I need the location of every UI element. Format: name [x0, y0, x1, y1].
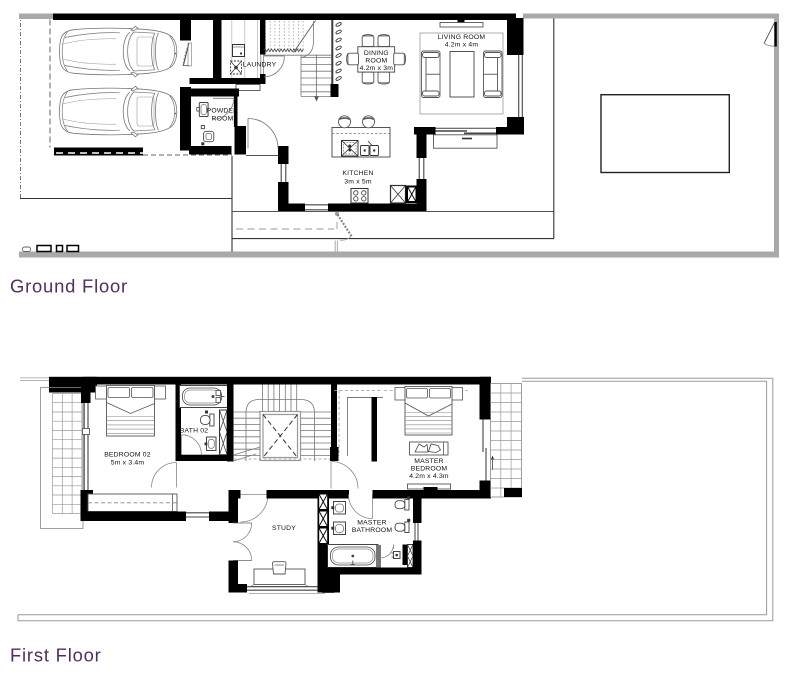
svg-text:LAUNDRY: LAUNDRY [243, 62, 277, 69]
svg-text:First Floor: First Floor [10, 645, 102, 666]
svg-text:DINING: DINING [364, 50, 389, 57]
svg-text:BATH 02: BATH 02 [180, 428, 208, 435]
svg-text:MASTER: MASTER [414, 458, 444, 465]
svg-text:BEDROOM 02: BEDROOM 02 [104, 452, 151, 459]
svg-text:ROOM: ROOM [365, 58, 387, 65]
svg-text:4.2m x 4m: 4.2m x 4m [445, 42, 479, 49]
svg-text:4.2m x 3m: 4.2m x 3m [360, 65, 394, 72]
svg-text:KITCHEN: KITCHEN [342, 170, 373, 177]
svg-text:LIVING ROOM: LIVING ROOM [438, 34, 486, 41]
svg-text:MASTER: MASTER [357, 520, 387, 527]
svg-text:BEDROOM: BEDROOM [411, 466, 448, 473]
svg-text:4.2m x 4.3m: 4.2m x 4.3m [409, 473, 449, 480]
svg-text:3m x 5m: 3m x 5m [344, 179, 372, 186]
svg-text:STUDY: STUDY [272, 525, 296, 532]
svg-text:Ground Floor: Ground Floor [10, 276, 128, 297]
svg-text:POWDER: POWDER [207, 108, 239, 115]
svg-text:BATHROOM: BATHROOM [352, 527, 393, 534]
svg-text:5m x 3.4m: 5m x 3.4m [111, 460, 145, 467]
